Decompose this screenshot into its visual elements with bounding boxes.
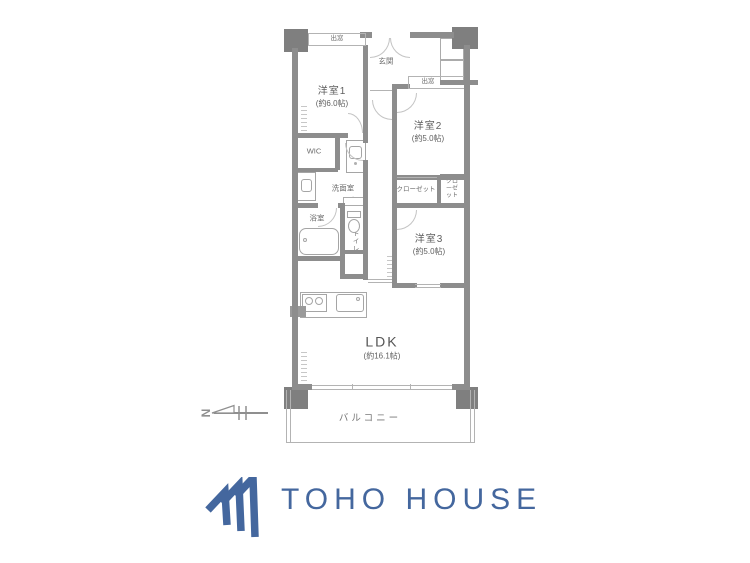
thin-line: [312, 385, 452, 386]
balcony-label: バルコニー: [339, 413, 401, 425]
wall-segment: [464, 45, 470, 387]
wall-segment: [452, 384, 470, 390]
thin-line: [308, 45, 366, 46]
wall-segment: [392, 84, 397, 210]
north-compass-icon: N: [198, 400, 272, 426]
bathroom-door-arc: [318, 208, 337, 227]
kitchen-sink-icon: [336, 294, 364, 312]
room-name: LDK: [364, 333, 401, 351]
wall-segment: [392, 208, 397, 288]
toilet-label: トイレ: [350, 230, 358, 253]
room-label-ldk: LDK (約16.1帖): [364, 333, 401, 361]
wall-segment: [340, 274, 368, 279]
thin-line: [408, 88, 464, 89]
closet-label-1: クローゼット: [397, 186, 436, 194]
closet-label-2: クローゼット: [444, 179, 460, 201]
thin-line: [415, 284, 441, 285]
thin-line: [352, 384, 353, 390]
wall-segment: [440, 174, 464, 180]
wall-segment: [363, 45, 368, 133]
wall-segment: [410, 32, 454, 38]
thin-line: [470, 390, 471, 443]
washroom-label: 洗面室: [332, 183, 355, 192]
thin-line: [368, 282, 392, 283]
room-label-bedroom2: 洋室2 (約5.0帖): [412, 121, 444, 144]
hatch-lines: [301, 352, 307, 382]
thin-line: [308, 33, 309, 46]
room-name: 洋室3: [413, 234, 445, 247]
bay-window-label-1: 出窓: [331, 35, 344, 43]
thin-line: [308, 33, 366, 34]
wall-segment: [397, 283, 417, 288]
wall-segment: [292, 203, 318, 208]
thin-line: [365, 33, 366, 46]
wall-segment: [437, 178, 441, 205]
hatch-lines: [387, 256, 392, 278]
toho-house-logo-icon: [202, 477, 266, 539]
entrance-door-arc: [390, 38, 410, 58]
bay-window-label-2: 出窓: [422, 78, 435, 86]
room-size: (約5.0帖): [412, 133, 444, 143]
thin-line: [370, 90, 392, 91]
room-label-bedroom1: 洋室1 (約6.0帖): [316, 86, 348, 109]
thin-line: [474, 390, 475, 443]
wall-segment: [440, 283, 464, 288]
wall-segment: [292, 168, 338, 172]
wall-segment: [440, 80, 478, 85]
wall-segment: [292, 256, 342, 261]
compass-n-letter: N: [199, 409, 213, 418]
entrance-door-arc: [370, 38, 390, 58]
room-name: 洋室1: [316, 86, 348, 99]
sink-faucet-icon: [356, 297, 360, 301]
wall-segment: [292, 384, 312, 390]
vanity-faucet-icon: [354, 162, 357, 165]
toilet-bowl-icon: [348, 219, 360, 233]
bath-drain-icon: [303, 238, 307, 242]
thin-line: [397, 177, 437, 178]
room-name: 洋室2: [412, 121, 444, 134]
wic-label: WIC: [307, 146, 322, 155]
thin-line: [410, 384, 411, 390]
wall-segment: [292, 48, 298, 387]
wall-segment: [335, 137, 340, 170]
floor-plan-page: 洋室1 (約6.0帖) 洋室2 (約5.0帖) 洋室3 (約5.0帖) LDK …: [0, 0, 750, 563]
wall-segment: [363, 160, 368, 280]
stove-burner-icon: [305, 297, 313, 305]
trunk-room-box: [440, 60, 464, 82]
bedroom1-door-arc: [348, 113, 363, 133]
room-label-bedroom3: 洋室3 (約5.0帖): [413, 234, 445, 257]
stove-burner-icon: [315, 297, 323, 305]
thin-line: [312, 389, 452, 390]
wall-segment: [392, 203, 464, 208]
washing-machine-drum-icon: [301, 179, 312, 192]
thin-line: [290, 390, 291, 443]
bedroom3-door-arc: [397, 210, 417, 230]
bedroom2-door-arc: [397, 93, 417, 113]
wall-segment: [345, 250, 365, 254]
wall-segment: [340, 203, 345, 278]
thin-line: [408, 76, 464, 77]
thin-line: [368, 279, 392, 280]
room-size: (約6.0帖): [316, 98, 348, 108]
room-size: (約5.0帖): [413, 246, 445, 256]
wall-segment: [363, 133, 368, 143]
pillar: [284, 387, 308, 409]
room-size: (約16.1帖): [364, 351, 401, 361]
thin-line: [286, 442, 475, 443]
thin-line: [415, 287, 441, 288]
toilet-tank-icon: [347, 211, 361, 218]
hall-door-arc: [372, 100, 392, 120]
thin-line: [286, 390, 287, 443]
entrance-label: 玄関: [379, 56, 394, 65]
thin-line: [408, 76, 409, 89]
hatch-lines: [301, 106, 307, 134]
toho-house-logo-text: TOHO HOUSE: [281, 483, 542, 517]
